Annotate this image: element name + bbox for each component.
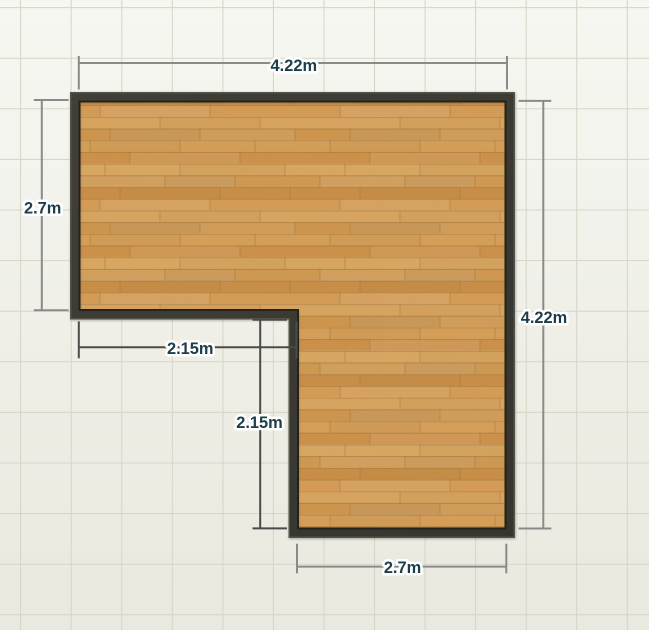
svg-text:2.7m: 2.7m xyxy=(384,559,421,577)
svg-text:4.22m: 4.22m xyxy=(521,309,567,327)
svg-text:4.22m: 4.22m xyxy=(271,57,317,75)
svg-text:2.15m: 2.15m xyxy=(167,340,213,358)
svg-text:2.7m: 2.7m xyxy=(24,200,61,218)
svg-text:2.15m: 2.15m xyxy=(236,414,282,432)
